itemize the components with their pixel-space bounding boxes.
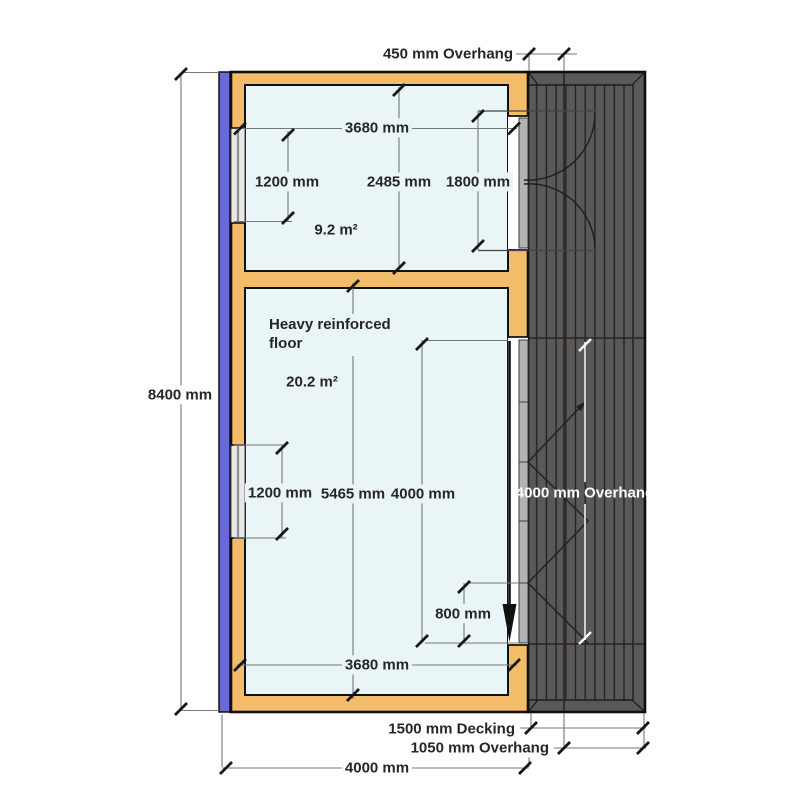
window-top-icon (230, 128, 246, 223)
heavy-floor-note-line1: Heavy reinforced (269, 316, 391, 333)
heavy-floor-note: Heavy reinforced floor (266, 314, 404, 356)
dim-deck-overhang-bottom: 1050 mm Overhang (408, 738, 552, 757)
insulated-wall-strip (219, 72, 230, 712)
heavy-floor-note-line2: floor (269, 335, 302, 352)
room-bottom-area: 20.2 m² (283, 372, 341, 391)
dim-overall-height: 8400 mm (145, 385, 215, 404)
dim-room-bottom-door: 4000 mm (388, 484, 458, 503)
floor-plan-page: 450 mm Overhang 3680 mm 1200 mm 2485 mm … (0, 0, 800, 800)
deck (528, 72, 645, 712)
dim-overall-width: 4000 mm (342, 758, 412, 777)
window-bottom-icon (230, 445, 246, 538)
dim-room-top-door: 1800 mm (443, 172, 513, 191)
dim-room-bottom-window: 1200 mm (245, 483, 315, 502)
dim-room-top-depth: 2485 mm (364, 172, 434, 191)
dim-room-bottom-depth: 5465 mm (318, 484, 388, 503)
dim-door-offset: 800 mm (432, 604, 494, 623)
dim-deck-overhang-right: 4000 mm Overhang (516, 484, 654, 501)
dim-decking-depth: 1500 mm Decking (385, 719, 518, 738)
dim-room-top-window: 1200 mm (252, 172, 322, 191)
dim-roof-overhang-top: 450 mm Overhang (380, 44, 516, 63)
dim-room-top-width: 3680 mm (342, 118, 412, 137)
room-top-area: 9.2 m² (311, 220, 360, 239)
dim-room-bottom-width: 3680 mm (342, 655, 412, 674)
